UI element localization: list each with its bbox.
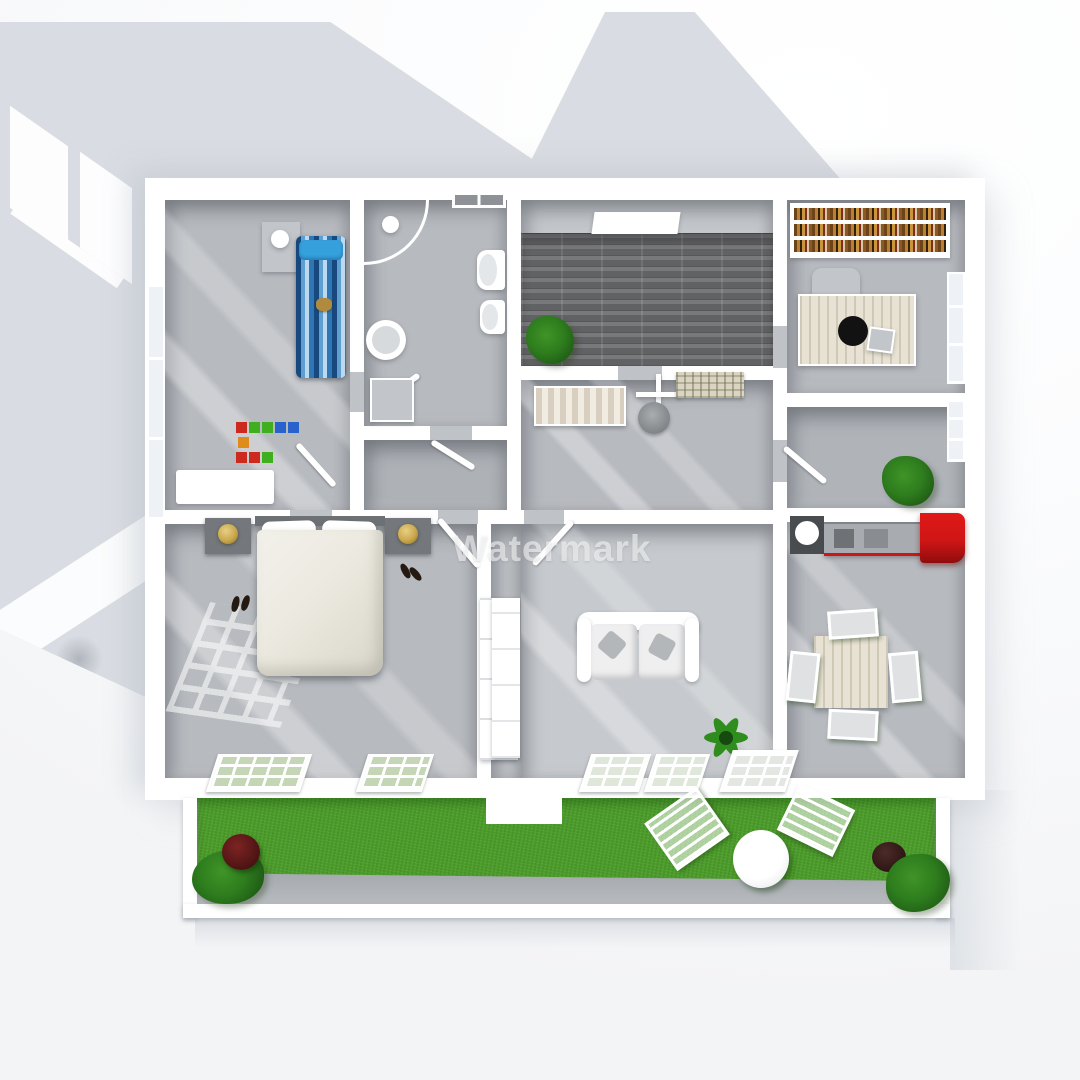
desk-chair-seat <box>838 316 868 346</box>
kids-bed-pillow <box>299 240 343 260</box>
garden-wall-left <box>183 798 197 918</box>
hall-cabinet <box>492 598 520 758</box>
living-window-floor-right <box>719 750 799 792</box>
monitor <box>866 326 895 353</box>
office-window-right <box>947 272 965 384</box>
building-shadow-top-right <box>505 12 850 178</box>
toy-block <box>238 437 249 448</box>
slat-bench <box>534 386 626 426</box>
bidet <box>480 300 505 334</box>
entry-open-door-panel <box>591 212 680 234</box>
book-row <box>794 240 946 252</box>
room-pantry <box>787 407 965 508</box>
floorplan-render: Watermark <box>0 0 1080 1080</box>
dining-chair-right <box>888 651 922 703</box>
kitchen-counter <box>824 524 922 556</box>
gold-lamp-right <box>398 524 418 544</box>
double-bed <box>255 516 385 678</box>
toy-block <box>288 422 299 433</box>
counter-red-trim <box>824 553 922 556</box>
bedroom-window-floor-left <box>206 754 312 792</box>
bed-duvet <box>257 530 383 676</box>
bathroom-window <box>452 192 506 208</box>
toy-block <box>262 452 273 463</box>
door-gap-office <box>773 326 787 368</box>
dining-chair-top <box>827 608 879 639</box>
sofa-arm-left <box>577 618 591 682</box>
pantry-window-right <box>947 400 965 462</box>
wall-radiator <box>676 372 744 398</box>
toilet-bowl <box>479 254 497 286</box>
gold-lamp-left <box>218 524 238 544</box>
living-window-floor-left <box>579 754 651 792</box>
toy-block <box>262 422 273 433</box>
dining-table <box>814 636 888 708</box>
sofa <box>577 612 699 684</box>
entry-plant <box>526 316 574 364</box>
garden-shadow-right <box>950 790 1020 970</box>
sofa-arm-right <box>685 618 699 682</box>
shower-head <box>382 216 399 233</box>
wash-basin <box>638 402 670 434</box>
toy-block <box>236 452 247 463</box>
door-gap-living <box>524 510 564 524</box>
bedroom-window-floor-right <box>356 754 434 792</box>
kids-window-left <box>147 285 165 520</box>
watermark-text: Watermark <box>432 528 672 570</box>
bookshelf <box>790 203 950 258</box>
toilet <box>477 250 505 290</box>
door-gap-closet <box>430 426 472 440</box>
garden-step <box>486 798 562 824</box>
door-gap-bathroom <box>350 372 364 412</box>
toy-blocks <box>236 422 300 466</box>
garden-shadow-bottom <box>195 918 955 948</box>
toy-on-bed <box>316 298 332 311</box>
building-shadow-left-band <box>0 90 147 710</box>
bidet-bowl <box>482 304 498 330</box>
toy-block <box>275 422 286 433</box>
washing-machine <box>370 378 414 422</box>
book-row <box>794 208 946 220</box>
round-sink <box>366 320 406 360</box>
plant-shadow <box>55 635 103 683</box>
dining-chair-left <box>785 651 820 704</box>
toy-block <box>249 422 260 433</box>
garden-wall-bottom <box>183 904 950 918</box>
kids-lamp <box>271 230 289 248</box>
garden-round-table <box>733 830 789 888</box>
toy-block <box>236 422 247 433</box>
stove <box>834 529 854 548</box>
counter-sink <box>864 529 888 548</box>
kitchen-corner-unit <box>790 516 824 554</box>
toy-block <box>249 452 260 463</box>
garden-plant-left-pot <box>222 834 260 870</box>
dining-chair-bottom <box>827 709 879 742</box>
red-fridge <box>920 513 965 563</box>
sink-basin <box>372 326 400 354</box>
kids-dresser <box>176 470 274 504</box>
kitchen-round-sink <box>795 521 819 545</box>
book-row <box>794 224 946 236</box>
room-closet <box>364 440 507 510</box>
